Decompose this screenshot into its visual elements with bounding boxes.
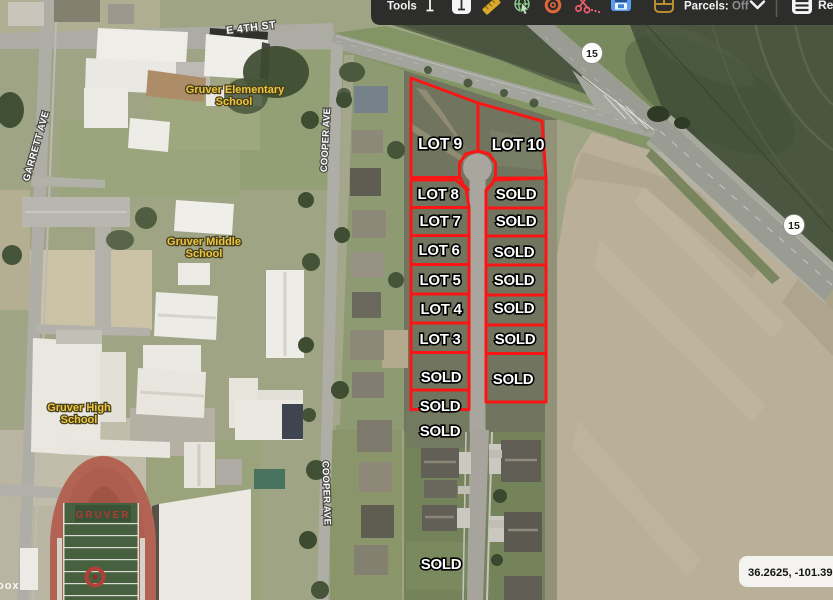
svg-text:36.2625, -101.395: 36.2625, -101.395	[748, 567, 833, 579]
svg-text:LOT 8: LOT 8	[417, 186, 458, 203]
svg-text:SOLD: SOLD	[420, 423, 461, 440]
svg-text:SOLD: SOLD	[494, 244, 535, 261]
svg-text:oox: oox	[0, 580, 20, 592]
svg-text:Gruver High: Gruver High	[47, 402, 111, 414]
svg-text:GRUVER: GRUVER	[76, 510, 131, 521]
svg-text:15: 15	[586, 48, 598, 60]
svg-text:SOLD: SOLD	[496, 186, 537, 203]
svg-text:LOT 10: LOT 10	[492, 137, 545, 154]
svg-text:SOLD: SOLD	[420, 398, 461, 415]
svg-text:LOT 9: LOT 9	[418, 136, 462, 153]
svg-text:SOLD: SOLD	[496, 213, 537, 230]
svg-text:Gruver Middle: Gruver Middle	[167, 236, 241, 248]
svg-text:SOLD: SOLD	[421, 369, 462, 386]
svg-text:School: School	[61, 414, 98, 426]
svg-text:SOLD: SOLD	[494, 300, 535, 317]
svg-text:Parcels: Off: Parcels: Off	[684, 1, 749, 13]
svg-text:SOLD: SOLD	[494, 272, 535, 289]
svg-text:LOT 3: LOT 3	[419, 331, 460, 348]
svg-text:LOT 6: LOT 6	[418, 242, 459, 259]
svg-text:Gruver Elementary: Gruver Elementary	[186, 84, 285, 96]
svg-text:School: School	[186, 248, 223, 260]
svg-text:Tools: Tools	[387, 1, 417, 13]
svg-text:LOT 5: LOT 5	[419, 272, 460, 289]
svg-text:LOT 4: LOT 4	[420, 301, 462, 318]
svg-text:SOLD: SOLD	[495, 331, 536, 348]
svg-text:School: School	[216, 96, 253, 108]
svg-text:Re: Re	[818, 0, 833, 12]
svg-text:COOPER AVE: COOPER AVE	[319, 461, 332, 526]
svg-text:SOLD: SOLD	[421, 556, 462, 573]
svg-text:LOT 7: LOT 7	[419, 213, 460, 230]
svg-text:15: 15	[788, 220, 800, 232]
svg-text:SOLD: SOLD	[493, 371, 534, 388]
